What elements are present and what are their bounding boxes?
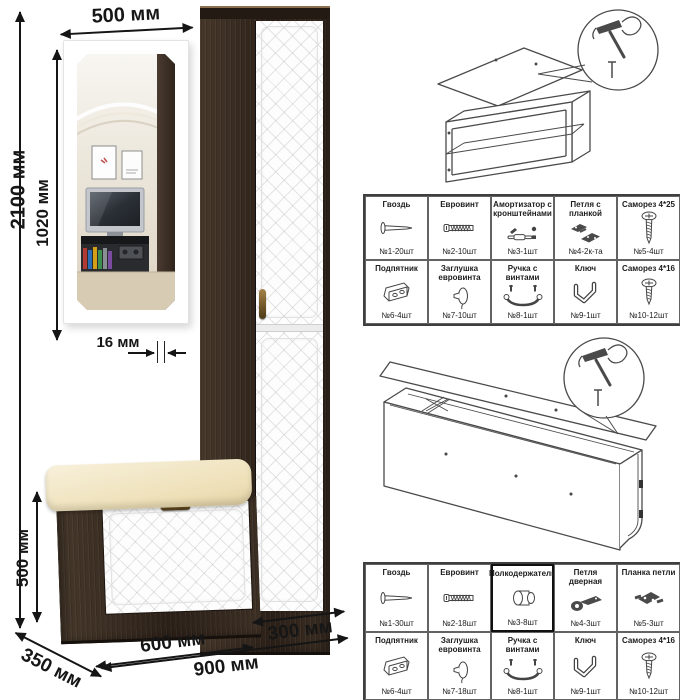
hw-part-qty: №8-1шт (507, 311, 537, 320)
hw-part-qty: №6-4шт (381, 687, 411, 696)
hw-cell: Саморез 4*16 №10-12шт (617, 260, 680, 324)
hw-part-qty: №4-3шт (570, 619, 600, 628)
hw-part-qty: №9-1шт (570, 311, 600, 320)
hw-part-name: Саморез 4*25 (622, 200, 675, 209)
mirror (63, 40, 189, 324)
dim-tick (164, 341, 165, 363)
hinge-plate-icon (632, 586, 666, 610)
dim-mirror-width: 500 мм (59, 1, 192, 36)
hw-cell: Ручка с винтами №8-1шт (491, 260, 554, 324)
hw-cell: Гвоздь №1-30шт (365, 564, 428, 632)
euroscrew-icon (442, 588, 478, 608)
cover-cap-icon (448, 658, 472, 684)
hw-part-qty: №7-18шт (442, 687, 477, 696)
hw-part-name: Полкодержатель (489, 569, 556, 578)
dim-mirror-thickness-arrow-left (128, 352, 154, 354)
screw-short-icon (640, 278, 658, 306)
hw-part-name: Ручка с винтами (494, 264, 551, 282)
flap-panel-outline (109, 509, 246, 606)
hw-part-name: Амортизатор с кронштейнами (493, 200, 552, 218)
mirror-reflection (77, 54, 175, 310)
hw-cell-highlighted: Полкодержатель №3-8шт (491, 564, 554, 632)
hw-part-name: Гвоздь (383, 200, 411, 209)
hw-part-qty: №4-2к-та (568, 247, 602, 256)
hw-cell: Петля дверная №4-3шт (554, 564, 617, 632)
hw-part-qty: №1-20шт (379, 247, 414, 256)
hw-part-qty: №3-8шт (507, 618, 537, 627)
hw-cell: Евровинт №2-18шт (428, 564, 491, 632)
hw-part-name: Саморез 4*16 (622, 636, 675, 645)
hw-cell: Ключ №9-1шт (554, 260, 617, 324)
handle-icon (503, 658, 543, 684)
hw-cell: Саморез 4*16 №10-12шт (617, 632, 680, 700)
nail-icon (379, 588, 415, 608)
hw-part-name: Ключ (575, 264, 596, 273)
hw-cell: Ручка с винтами №8-1шт (491, 632, 554, 700)
screw-short-icon (640, 652, 658, 680)
door-panel-outline-lower (261, 338, 318, 602)
hex-key-icon (570, 278, 602, 306)
hw-part-name: Планка петли (622, 568, 676, 577)
assembly-step-bench-sketch (386, 2, 678, 192)
hw-cell: Евровинт №2-10шт (428, 196, 491, 260)
hw-part-name: Саморез 4*16 (622, 264, 675, 273)
furniture-spec-sheet: 2100 мм 1020 мм 500 мм (0, 0, 680, 700)
dim-mirror-height-label: 1020 мм (33, 165, 53, 261)
dim-tick (157, 341, 158, 363)
screw-long-icon (640, 211, 658, 245)
hw-cell: Заглушка евровинта №7-10шт (428, 260, 491, 324)
hw-part-name: Евровинт (440, 200, 479, 209)
hw-part-name: Евровинт (440, 568, 479, 577)
dim-mirror-thickness-arrow-right (168, 352, 186, 354)
dim-bench-height-arrow (36, 492, 38, 622)
dim-mirror-height-arrow (56, 50, 58, 340)
dim-mirror-width-label: 500 мм (59, 1, 192, 31)
gas-lift-icon (505, 222, 541, 244)
nail-icon (379, 218, 415, 238)
bench-body (56, 496, 261, 644)
mirror-glass (77, 54, 175, 310)
hw-cell: Гвоздь №1-20шт (365, 196, 428, 260)
hardware-table-bottom: Гвоздь №1-30шт Евровинт №2-18шт Полкодер… (363, 562, 680, 700)
hw-cell: Ключ №9-1шт (554, 632, 617, 700)
hw-part-qty: №9-1шт (570, 687, 600, 696)
dim-mirror-thickness-label: 16 мм (90, 334, 146, 351)
hw-part-qty: №1-30шт (379, 619, 414, 628)
bench-cushion (45, 459, 252, 512)
hw-cell: Саморез 4*25 №5-4шт (617, 196, 680, 260)
door-hinge-icon (568, 591, 604, 615)
hw-cell: Петля с планкой №4-2к-та (554, 196, 617, 260)
hw-cell: Подпятник №6-4шт (365, 260, 428, 324)
hw-part-name: Петля дверная (557, 568, 614, 586)
door-panel-outline-upper (261, 26, 318, 318)
handle-icon (503, 284, 543, 310)
hw-part-qty: №2-18шт (442, 619, 477, 628)
cabinet-door-handle (259, 289, 266, 319)
hw-part-qty: №5-4шт (633, 247, 663, 256)
foot-glide-icon (381, 654, 413, 678)
bench-flap-door (102, 501, 252, 614)
hex-key-icon (570, 652, 602, 680)
shelf-pin-icon (506, 587, 540, 609)
shoe-bench (45, 454, 263, 647)
hw-cell: Заглушка евровинта №7-18шт (428, 632, 491, 700)
hw-part-name: Ключ (575, 636, 596, 645)
hw-cell: Подпятник №6-4шт (365, 632, 428, 700)
hw-cell: Планка петли №5-3шт (617, 564, 680, 632)
hw-part-name: Подпятник (375, 264, 418, 273)
hw-part-name: Заглушка евровинта (431, 264, 488, 282)
assembly-step-cabinet-sketch (366, 334, 680, 562)
cabinet-top-face (200, 6, 330, 19)
hw-part-qty: №8-1шт (507, 687, 537, 696)
cover-cap-icon (448, 284, 472, 310)
hw-part-qty: №2-10шт (442, 247, 477, 256)
hw-part-qty: №7-10шт (442, 311, 477, 320)
hardware-table-top: Гвоздь №1-20шт Евровинт №2-10шт Амортиза… (363, 194, 680, 326)
hw-part-qty: №5-3шт (633, 619, 663, 628)
hw-part-name: Подпятник (375, 636, 418, 645)
euroscrew-icon (442, 218, 478, 238)
foot-glide-icon (381, 280, 413, 304)
hw-part-qty: №3-1шт (507, 247, 537, 256)
hinge-with-plate-icon (568, 220, 604, 246)
hw-part-qty: №10-12шт (629, 311, 668, 320)
cabinet-door (256, 21, 323, 611)
hw-part-name: Петля с планкой (557, 200, 614, 218)
hw-cell: Амортизатор с кронштейнами №3-1шт (491, 196, 554, 260)
hw-part-name: Гвоздь (383, 568, 411, 577)
door-seam (256, 324, 323, 332)
dim-bench-height-label: 500 мм (13, 518, 33, 598)
hw-part-qty: №6-4шт (381, 311, 411, 320)
hw-part-qty: №10-12шт (629, 687, 668, 696)
dim-total-height-label: 2100 мм (8, 135, 31, 245)
hw-part-name: Заглушка евровинта (431, 636, 488, 654)
hw-part-name: Ручка с винтами (494, 636, 551, 654)
